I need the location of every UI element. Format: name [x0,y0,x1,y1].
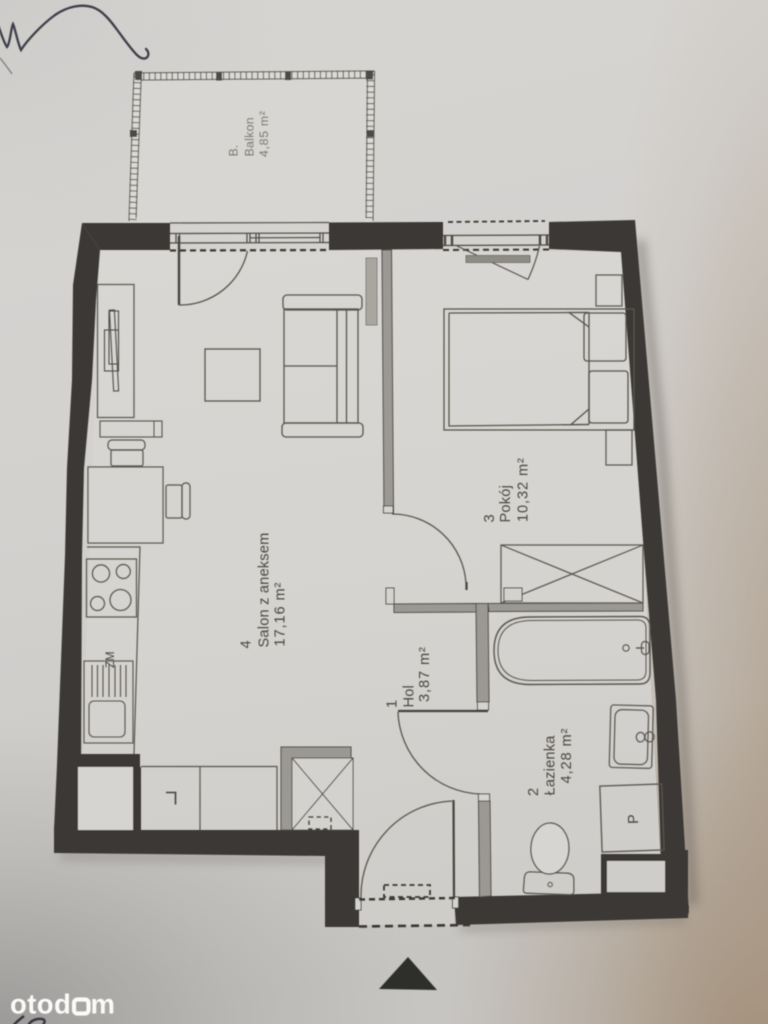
svg-text:1: 1 [385,700,401,708]
svg-text:Łazienka: Łazienka [543,735,559,796]
svg-text:P: P [626,814,642,824]
svg-text:4: 4 [239,640,255,648]
svg-text:otod: otod [10,989,71,1020]
svg-text:m: m [91,989,115,1020]
svg-text:Salon z aneksem: Salon z aneksem [257,533,273,648]
svg-text:Balkon: Balkon [243,117,257,156]
svg-text:3,87 m²: 3,87 m² [417,646,433,702]
svg-text:Hol: Hol [402,685,418,708]
svg-text:4,28 m²: 4,28 m² [559,728,575,784]
svg-text:3: 3 [482,514,498,522]
svg-text:4,85 m²: 4,85 m² [257,110,271,157]
svg-text:Pokój: Pokój [498,485,514,523]
svg-text:ZM: ZM [105,651,117,668]
svg-text:10,32 m²: 10,32 m² [516,457,532,522]
svg-text:2: 2 [526,788,542,796]
svg-text:B.: B. [227,145,241,157]
svg-text:17,16 m²: 17,16 m² [273,582,289,647]
